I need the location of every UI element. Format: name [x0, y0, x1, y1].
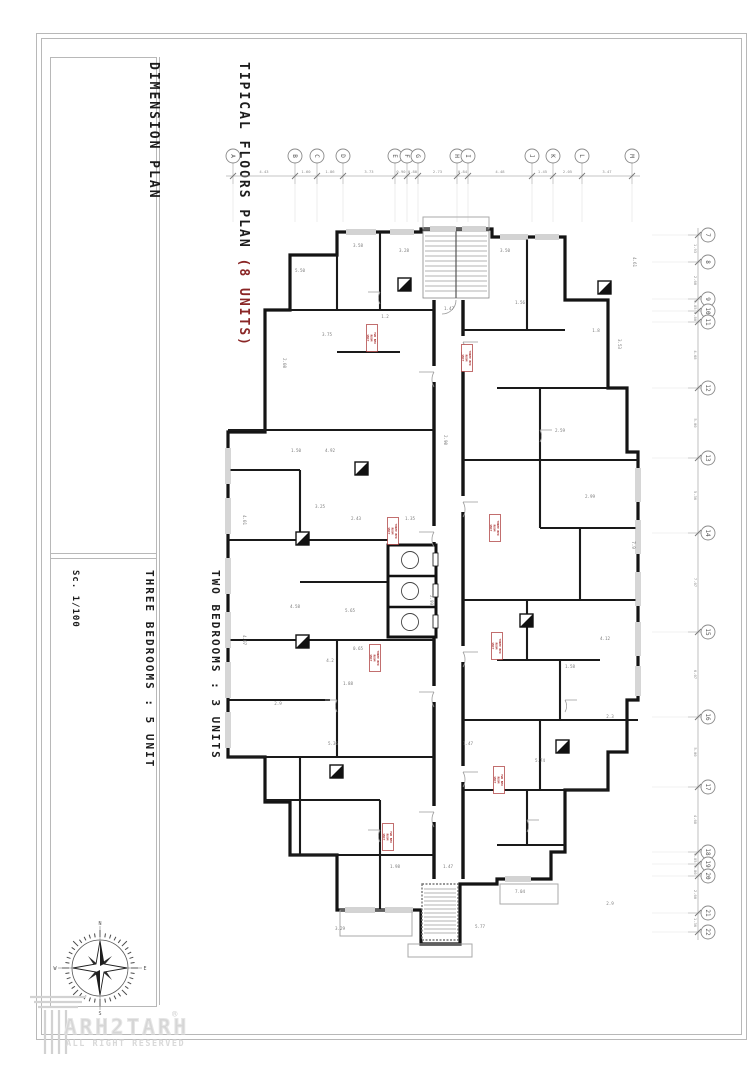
grid-bubble-label: M — [628, 154, 635, 158]
unit-tag: THREE BEDROOMUNIT — [489, 515, 500, 542]
dimension-text: 2.99 — [429, 595, 434, 606]
unit-tag: TWO BEDROOMUNIT — [382, 824, 393, 851]
grid-string-top: ABCDEFGHIJKLM4.431.601.863.730.900.802.7… — [226, 149, 640, 184]
dimension-text: 1.98 — [390, 864, 401, 869]
window — [225, 498, 230, 534]
compass-tick — [69, 952, 73, 954]
compass-tick — [67, 978, 71, 979]
dimension-text: 2.90 — [443, 435, 448, 446]
dimension-text: 2.99 — [585, 494, 596, 499]
dimension-text: 4.01 — [242, 515, 247, 526]
dimension-text: 1.2 — [381, 314, 389, 319]
grid-dimension-value: 0.80 — [693, 865, 698, 875]
compass-tick — [89, 997, 90, 1001]
window — [505, 876, 531, 881]
grid-dimension-value: 2.05 — [563, 169, 572, 174]
compass-tick — [69, 982, 73, 984]
compass-needle-south — [96, 970, 100, 995]
dimension-text: 5.50 — [295, 268, 306, 273]
grid-bubble-label: 19 — [704, 860, 711, 868]
grid-bubble-label: 16 — [704, 713, 711, 721]
compass-label-west: W — [53, 966, 57, 972]
grid-dimension-value: 6.07 — [693, 670, 698, 679]
dimension-text: 4.92 — [325, 448, 336, 453]
grid-bubble-label: 13 — [704, 454, 711, 462]
title-block-divider-1 — [50, 553, 156, 554]
unit-tag: THREE BEDROOMUNIT — [461, 345, 472, 372]
dimension-text: 7.9 — [631, 541, 636, 549]
dimension-text: 4.07 — [242, 635, 247, 646]
compass-label-east: E — [143, 966, 146, 972]
unit-tag: TWO BEDROOMUNIT — [493, 767, 504, 794]
grid-bubble-label: 14 — [704, 529, 711, 537]
grid-bubble-label: I — [464, 154, 471, 158]
compass-tick — [95, 933, 96, 937]
dimension-text: 4.12 — [600, 636, 611, 641]
dimension-text: 5.65 — [345, 608, 356, 613]
grid-dimension-value: 4.68 — [693, 350, 698, 360]
dimension-text: 1.58 — [565, 664, 576, 669]
window — [635, 520, 640, 554]
unit-tag-text: UNIT — [491, 643, 495, 650]
compass-tick — [131, 973, 135, 974]
elevator-core — [388, 545, 438, 637]
grid-bubble-label: G — [414, 154, 421, 158]
window — [225, 712, 230, 748]
compass-tick — [129, 957, 133, 958]
grid-dimension-value: 4.43 — [259, 169, 268, 174]
dimension-text: 3.50 — [500, 248, 511, 253]
dimension-text: 3.25 — [315, 504, 326, 509]
grid-bubble-label: 8 — [704, 260, 711, 264]
compass-tick — [114, 937, 116, 941]
dimension-text: 3.29 — [335, 926, 346, 931]
window — [346, 229, 376, 234]
grid-bubble-label: 20 — [704, 872, 711, 880]
grid-dimension-value: 3.73 — [364, 169, 373, 174]
grid-bubble-label: 10 — [704, 307, 711, 315]
dimension-text: 2.59 — [555, 428, 566, 433]
shaft-marker — [296, 635, 309, 648]
compass-tick — [128, 952, 132, 954]
compass-tick — [122, 990, 127, 995]
grid-dimension-value: 4.48 — [495, 169, 505, 174]
dimension-text: 2.3 — [606, 714, 614, 719]
grid-dimension-value: 7.07 — [693, 578, 698, 587]
grid-dimension-value: 5.00 — [693, 747, 698, 757]
shaft-marker — [296, 532, 309, 545]
grid-bubble-label: 7 — [704, 233, 711, 237]
dimension-text: 3.53 — [617, 339, 622, 350]
grid-dimension-value: 1.45 — [538, 169, 547, 174]
grid-bubble-label: 21 — [704, 909, 711, 917]
dimension-text: 5.74 — [535, 758, 546, 763]
dimension-text: 1.88 — [343, 681, 354, 686]
compass-tick — [129, 978, 133, 979]
window — [225, 612, 230, 648]
dimension-text: 3.75 — [322, 332, 333, 337]
grid-dimension-value: 2.73 — [433, 169, 442, 174]
logo-wordmark: ARH2TARH — [64, 1015, 189, 1039]
compass-tick — [65, 963, 69, 964]
grid-dimension-value: 5.36 — [693, 491, 698, 501]
grid-string-right: 789101112131415161718192021221.932.600.8… — [688, 228, 715, 940]
grid-dimension-value: 2.60 — [693, 276, 698, 286]
compass-tick — [110, 935, 111, 939]
compass-tick — [79, 940, 81, 943]
grid-bubble-label: F — [403, 154, 410, 158]
shaft-marker — [330, 765, 343, 778]
grid-dimension-value: 3.47 — [602, 169, 611, 174]
compass-tick — [118, 940, 120, 943]
grid-bubble-label: E — [391, 154, 398, 158]
window — [225, 558, 230, 594]
grid-dimension-value: 1.36 — [693, 918, 698, 928]
grid-bubble-label: 11 — [704, 318, 711, 326]
compass-tick — [105, 999, 106, 1003]
compass-tick — [67, 957, 71, 958]
grid-dimension-value: 1.86 — [325, 169, 335, 174]
compass-needle-north — [100, 941, 104, 966]
grid-bubble-label: A — [229, 154, 236, 158]
grid-dimension-value: 0.90 — [396, 169, 406, 174]
compass-tick — [73, 941, 78, 946]
grid-dimension-value: 0.85 — [693, 853, 698, 862]
floor-plan-drawing: ABCDEFGHIJKLM4.431.601.863.730.900.802.7… — [160, 128, 748, 1018]
window — [635, 666, 640, 696]
unit-tag-text: UNIT — [461, 355, 465, 362]
dimension-text: 5.77 — [475, 924, 486, 929]
compass-tick — [65, 973, 69, 974]
compass-tick — [105, 933, 106, 937]
grid-bubble-label: C — [313, 154, 320, 158]
compass-tick — [118, 993, 120, 996]
dimension-text: 2.43 — [351, 516, 362, 521]
dimension-text: 2.08 — [282, 358, 287, 369]
shaft-marker — [398, 278, 411, 291]
dimension-text: 1.47 — [463, 741, 474, 746]
window — [390, 229, 414, 234]
dimension-text: 4.58 — [290, 604, 301, 609]
scale-note: Sc. 1/100 — [70, 570, 80, 628]
grid-dimension-value: 1.93 — [693, 244, 698, 253]
grid-dimension-value: 0.85 — [693, 300, 698, 309]
compass-label-north: N — [98, 921, 101, 927]
unit-tag-text: UNIT — [493, 777, 497, 784]
grid-bubble-label: 22 — [704, 928, 711, 936]
dimension-text: 3.28 — [399, 248, 410, 253]
grid-dimension-value: 1.60 — [301, 169, 311, 174]
window — [225, 662, 230, 698]
grid-bubble-label: B — [291, 154, 298, 158]
window — [225, 448, 230, 484]
compass-tick — [95, 999, 96, 1003]
dimension-text: 2.9 — [274, 701, 282, 706]
grid-bubble-label: K — [549, 154, 556, 158]
window — [635, 468, 640, 502]
drawing-sheet: TIPICAL FLOORS PLAN (8 UNITS) DIMENSION … — [0, 0, 751, 1080]
grid-bubble-label: 17 — [704, 783, 711, 791]
logo-tagline: ALL RIGHT RESERVED — [66, 1039, 185, 1049]
dimension-text: 5.36 — [328, 741, 339, 746]
dimension-text: 1.47 — [443, 864, 454, 869]
dimension-text: 0.65 — [353, 646, 364, 651]
unit-tag-text: UNIT — [366, 335, 370, 342]
dimension-text: 1.47 — [444, 306, 455, 311]
unit-tag: THREE BEDROOMUNIT — [387, 518, 398, 545]
window — [500, 234, 528, 239]
dimension-text: 2.9 — [606, 901, 614, 906]
grid-bubble-label: L — [578, 154, 585, 158]
grid-dimension-value: 0.80 — [693, 312, 698, 322]
unit-tag: THREE BEDROOMUNIT — [369, 645, 380, 672]
window — [535, 234, 559, 239]
shaft-marker — [355, 462, 368, 475]
grid-bubble-label: D — [339, 154, 346, 158]
compass-tick — [72, 947, 75, 949]
compass-tick — [110, 997, 111, 1001]
window — [635, 622, 640, 656]
unit-tag-text: UNIT — [387, 528, 391, 535]
stairwell-bottom — [422, 884, 458, 940]
compass-tick — [125, 947, 128, 949]
grid-bubble-label: 15 — [704, 628, 711, 636]
grid-dimension-value: 2.60 — [693, 890, 698, 900]
grid-dimension-value: 4.68 — [693, 815, 698, 825]
dimension-text: 4.2 — [326, 658, 334, 663]
grid-dimension-value: 0.84 — [458, 169, 468, 174]
grid-bubble-label: 12 — [704, 384, 711, 392]
shaft-marker — [520, 614, 533, 627]
dimension-text: 4.61 — [632, 257, 637, 268]
unit-tag: THREE BEDROOMUNIT — [491, 633, 502, 660]
dimension-text: 7.04 — [515, 889, 526, 894]
compass-tick — [114, 996, 116, 1000]
unit-tag-text: UNIT — [489, 525, 493, 532]
grid-bubble-label: 9 — [704, 297, 711, 301]
compass-tick — [84, 937, 86, 941]
grid-bubble-label: J — [528, 154, 535, 158]
unit-tag-text: UNIT — [369, 655, 373, 662]
dimension-text: 1.56 — [515, 300, 526, 305]
unit-tag-text: UNIT — [382, 834, 386, 841]
dimension-text: 1.50 — [291, 448, 302, 453]
dimension-text: 3.58 — [353, 243, 364, 248]
unit-tag: TWO BEDROOMUNIT — [366, 325, 377, 352]
title-block-divider-2 — [50, 558, 156, 559]
grid-dimension-value: 5.00 — [693, 418, 698, 428]
dimension-text: 1.35 — [405, 516, 416, 521]
shaft-marker — [598, 281, 611, 294]
compass-tick — [125, 986, 128, 988]
dimension-text: 1.8 — [592, 328, 600, 333]
shaft-marker — [556, 740, 569, 753]
legend-three-bedrooms: THREE BEDROOMS : 5 UNIT — [138, 570, 160, 768]
compass-tick — [122, 941, 127, 946]
grid-bubble-label: H — [453, 154, 460, 158]
compass-tick — [72, 986, 75, 988]
grid-bubble-label: 18 — [704, 848, 711, 856]
compass-tick — [131, 963, 135, 964]
compass-tick — [89, 935, 90, 939]
compass-tick — [128, 982, 132, 984]
grid-dimension-value: 0.80 — [408, 169, 418, 174]
window — [635, 572, 640, 606]
